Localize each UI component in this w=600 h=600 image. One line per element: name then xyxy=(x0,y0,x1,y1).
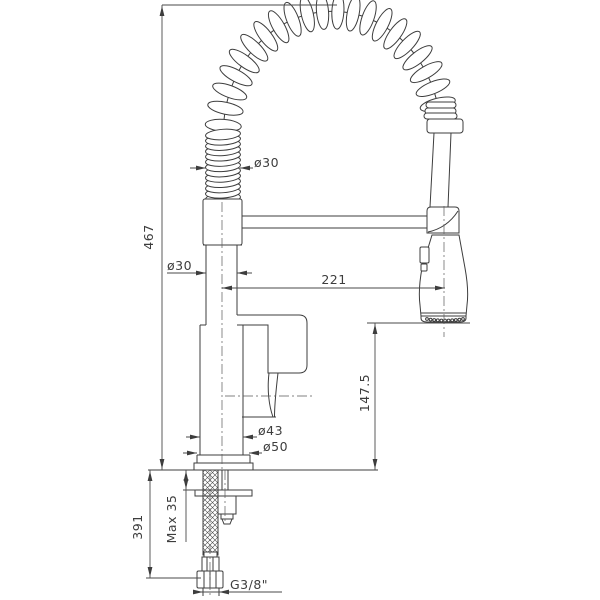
technical-drawing-canvas: 467 ø30 ø30 221 147.5 ø43 ø50 391 Max 35… xyxy=(0,0,600,600)
mounting-nut xyxy=(218,496,236,514)
dim-label-g38: G3/8" xyxy=(230,577,268,592)
centerlines xyxy=(203,202,444,597)
spout-holder xyxy=(203,199,427,245)
dim-label-147-5: 147.5 xyxy=(357,374,372,412)
dim-label-391: 391 xyxy=(130,514,145,539)
dimension-outlet-height: 147.5 xyxy=(357,323,470,470)
base-flange xyxy=(194,463,253,470)
dimension-arrowheads xyxy=(148,6,445,594)
dimension-column-diameter: ø30 xyxy=(167,258,252,273)
dimension-body-diameter: ø43 xyxy=(186,423,283,438)
dim-label-column-d30: ø30 xyxy=(167,258,192,273)
dim-label-d43: ø43 xyxy=(258,423,283,438)
spray-nozzles xyxy=(426,318,465,322)
dim-label-max-35: Max 35 xyxy=(164,495,179,544)
dimension-max-thickness: Max 35 xyxy=(164,470,196,543)
dimension-base-diameter: ø50 xyxy=(183,439,288,454)
dim-label-coil-d30: ø30 xyxy=(254,155,279,170)
dim-label-221: 221 xyxy=(321,272,346,287)
dimension-spout-reach: 221 xyxy=(222,272,445,288)
spray-head xyxy=(419,207,467,322)
spray-head-neck xyxy=(424,102,463,207)
dim-label-d50: ø50 xyxy=(263,439,288,454)
spray-button xyxy=(420,247,429,263)
dim-label-467: 467 xyxy=(141,224,156,249)
lever-handle xyxy=(237,315,307,417)
faucet-drawing: 467 ø30 ø30 221 147.5 ø43 ø50 391 Max 35… xyxy=(0,0,600,600)
spring-hose-coil xyxy=(205,0,457,205)
